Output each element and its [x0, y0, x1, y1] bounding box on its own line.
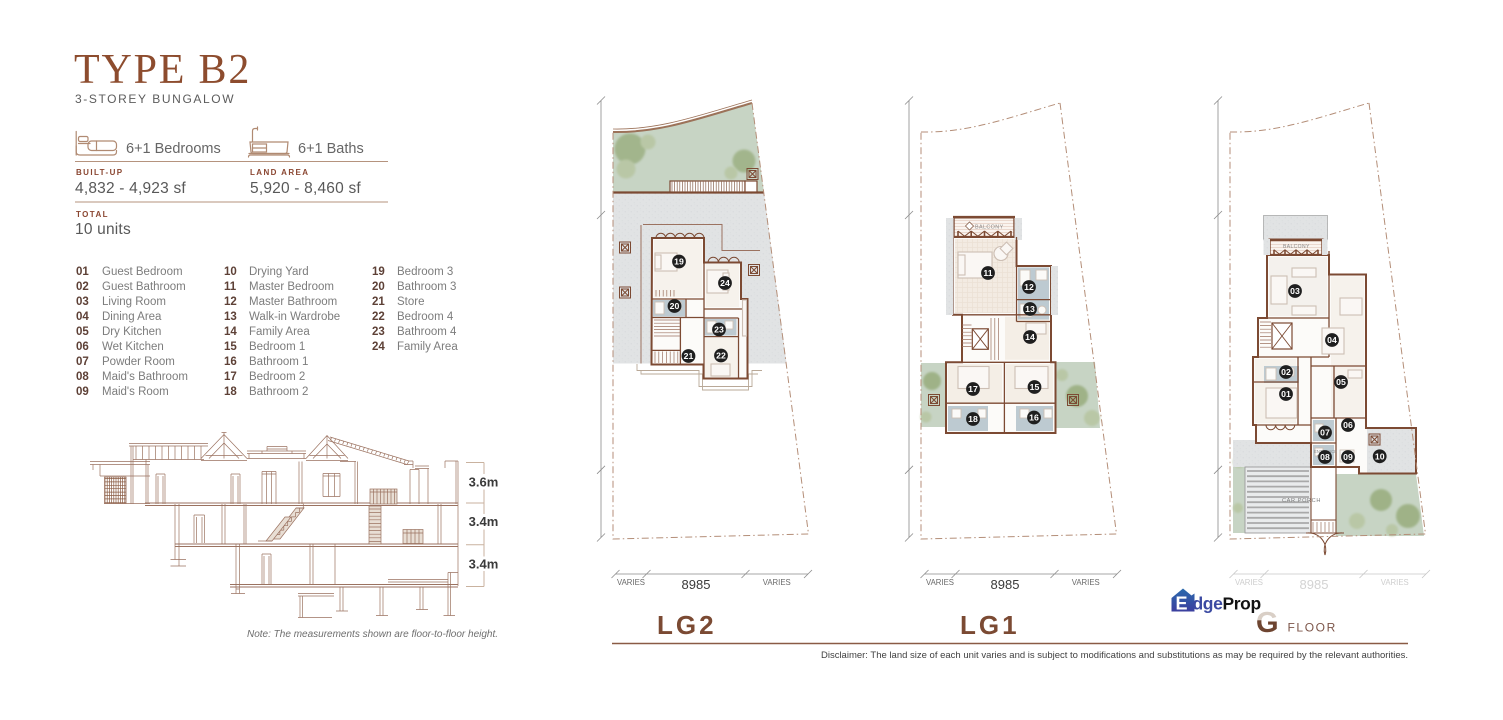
svg-text:8985: 8985	[1300, 577, 1329, 592]
svg-text:01: 01	[1281, 389, 1291, 399]
svg-text:12: 12	[1024, 282, 1034, 292]
svg-text:E: E	[1176, 594, 1188, 614]
svg-text:6+1 Bedrooms: 6+1 Bedrooms	[126, 141, 221, 157]
svg-text:15: 15	[1030, 382, 1040, 392]
svg-text:24: 24	[720, 278, 730, 288]
svg-text:07: 07	[1320, 428, 1330, 438]
svg-text:08: 08	[1320, 452, 1330, 462]
svg-text:06: 06	[1343, 420, 1353, 430]
svg-text:6+1 Baths: 6+1 Baths	[298, 141, 364, 157]
svg-text:BALCONY: BALCONY	[1283, 244, 1310, 250]
svg-text:VARIES: VARIES	[1381, 578, 1409, 587]
svg-text:19: 19	[674, 257, 684, 267]
svg-text:Prop: Prop	[1223, 594, 1261, 614]
svg-text:18: 18	[968, 414, 978, 424]
svg-text:16: 16	[1029, 413, 1039, 423]
svg-text:21: 21	[684, 351, 694, 361]
svg-text:17: 17	[968, 384, 978, 394]
svg-text:11: 11	[983, 268, 992, 278]
svg-text:VARIES: VARIES	[763, 578, 791, 587]
svg-text:14: 14	[1025, 332, 1035, 342]
svg-text:3.4m: 3.4m	[469, 557, 499, 572]
svg-text:8985: 8985	[682, 577, 711, 592]
svg-text:04: 04	[1327, 335, 1337, 345]
svg-text:VARIES: VARIES	[1072, 578, 1100, 587]
svg-text:03: 03	[1290, 286, 1300, 296]
svg-text:BALCONY: BALCONY	[975, 224, 1004, 230]
svg-text:22: 22	[716, 351, 726, 361]
svg-text:VARIES: VARIES	[926, 578, 954, 587]
svg-text:02: 02	[1281, 367, 1291, 377]
svg-text:8985: 8985	[991, 577, 1020, 592]
svg-text:05: 05	[1336, 377, 1346, 387]
svg-text:3.6m: 3.6m	[469, 475, 499, 490]
svg-text:VARIES: VARIES	[1235, 578, 1263, 587]
svg-text:VARIES: VARIES	[617, 578, 645, 587]
svg-text:10: 10	[1375, 451, 1385, 461]
svg-text:20: 20	[670, 301, 680, 311]
svg-text:FLOOR: FLOOR	[1288, 621, 1337, 635]
svg-text:dge: dge	[1193, 594, 1224, 614]
svg-text:09: 09	[1343, 452, 1353, 462]
svg-text:CAR PORCH: CAR PORCH	[1282, 498, 1321, 504]
svg-text:LG2: LG2	[657, 610, 717, 640]
svg-text:13: 13	[1025, 304, 1035, 314]
svg-text:3.4m: 3.4m	[469, 514, 499, 529]
svg-text:LG1: LG1	[960, 610, 1020, 640]
svg-text:23: 23	[714, 325, 724, 335]
